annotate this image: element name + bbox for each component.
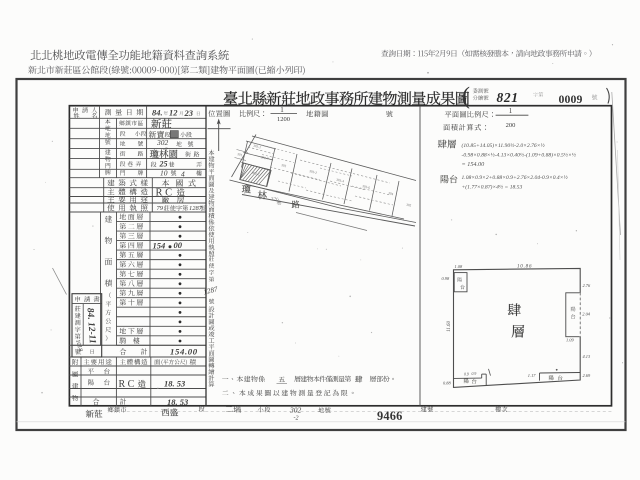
svg-text:= 154.00: = 154.00 [462,161,486,168]
svg-text:-2: -2 [294,416,299,422]
svg-text:2.76: 2.76 [583,283,591,288]
svg-text:1.08×0.9×2+0.88×0.9+2.76×2.04-: 1.08×0.9×2+0.88×0.9+2.76×2.04-0.9×0.4×½ [462,174,569,181]
svg-text:2.04: 2.04 [582,312,590,317]
svg-text:R C: R C [119,379,135,390]
svg-text:-0.98×0.88×½-4.13×0.40½-(1.09+: -0.98×0.88×½-4.13×0.40½-(1.09+0.88)×0.5½… [462,151,577,158]
svg-text:1: 1 [280,106,284,114]
svg-text:2.69: 2.69 [583,373,591,378]
svg-text:00: 00 [174,240,183,250]
svg-text:18. 53: 18. 53 [164,378,186,388]
svg-text:10.86: 10.86 [517,265,532,270]
svg-text:(: ( [462,84,470,110]
svg-text:4.13: 4.13 [583,354,591,359]
svg-text:+(1.77×0.87)×4½ = 18.53: +(1.77×0.87)×4½ = 18.53 [462,184,523,191]
svg-text:0.98: 0.98 [442,276,450,281]
svg-text:(10.85+14.05)×11.90½-2.0×2.76×: (10.85+14.05)×11.90½-2.0×2.76×½ [462,142,546,149]
svg-text:1.09: 1.09 [566,337,574,342]
svg-text:4: 4 [181,169,185,178]
svg-text:12: 12 [169,108,178,118]
svg-text:302: 302 [156,138,169,147]
svg-text:0009: 0009 [559,92,583,106]
svg-text:23: 23 [184,108,194,118]
svg-text:11.60: 11.60 [447,321,452,332]
svg-text:18. 53: 18. 53 [167,397,189,407]
svg-text:1200: 1200 [277,116,290,123]
svg-text:9466: 9466 [377,409,403,423]
svg-text:821: 821 [497,90,519,105]
svg-text:79: 79 [157,205,164,212]
svg-text:1.08: 1.08 [455,264,463,269]
svg-text:154: 154 [153,240,166,250]
svg-text:0.9: 0.9 [464,372,469,376]
svg-text:302: 302 [289,406,302,415]
svg-text:10: 10 [160,168,168,177]
svg-text:154.00: 154.00 [170,347,198,357]
svg-text:84.: 84. [152,107,163,117]
svg-text:1.17: 1.17 [528,373,536,378]
svg-text:0.88: 0.88 [443,380,451,385]
svg-text:1: 1 [509,107,513,115]
svg-text:0.9: 0.9 [472,372,477,376]
svg-text:25: 25 [159,160,168,169]
svg-text:200: 200 [506,122,516,129]
